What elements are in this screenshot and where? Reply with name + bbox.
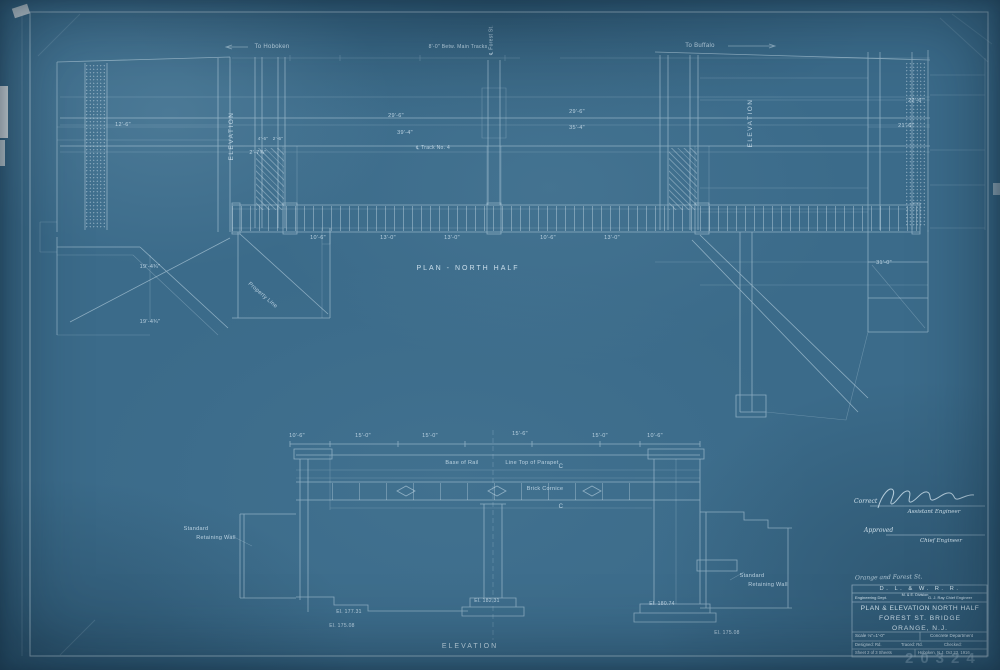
label-retaining-wall-left-2: Retaining Wall	[196, 536, 235, 542]
pier-hatch-right	[669, 148, 697, 210]
ballast-hatch-right	[905, 62, 927, 227]
drawing-title-line3: ORANGE, N.J.	[892, 626, 948, 633]
engineer-signature	[878, 489, 974, 508]
dim-label: 12'-6"	[115, 123, 131, 129]
chief-engineer-name: G. J. Ray Chief Engineer	[928, 596, 972, 600]
dim-label: 15'-0"	[355, 434, 371, 440]
correct-label: Correct	[854, 499, 877, 505]
traced-label: Traced: Rd.	[901, 643, 923, 647]
section-mark-c: C	[559, 464, 564, 470]
dim-label: 15'-6"	[512, 432, 528, 438]
pier-hatch-left	[256, 148, 284, 210]
dim-label: 35'-4"	[569, 126, 585, 132]
blueprint-sheet: To Hoboken To Buffalo 8'-0" Betw. Main T…	[0, 0, 1000, 670]
label-retaining-wall-right-1: Standard	[740, 574, 765, 580]
dim-label: 4'-6"	[258, 137, 268, 142]
label-elevation-right: ELEVATION	[748, 98, 755, 147]
label-elevation-left: ELEVATION	[229, 111, 236, 160]
dim-label: 19'-4¾"	[140, 320, 161, 326]
designed-label: Designed: Rd.	[855, 643, 882, 647]
sheet-number-label: Sheet 2 of 3 Sheets	[855, 651, 892, 655]
label-centerline-forest-st: ℄ Forest St.	[490, 25, 495, 55]
secondary-lines	[40, 55, 985, 604]
dim-label: 31'-0"	[876, 261, 892, 267]
dim-label: 29'-6"	[569, 110, 585, 116]
drawing-number-stamp: 20324	[905, 650, 982, 667]
dim-label: 39'-4"	[397, 131, 413, 137]
label-line-top-parapet: Line Top of Parapet	[505, 461, 558, 467]
dim-label: 2'-6"	[273, 137, 283, 142]
dim-label: 13'-0"	[444, 236, 460, 242]
scale-label: Scale ⅛"=1'-0"	[855, 634, 884, 639]
dim-label: 10'-6"	[289, 434, 305, 440]
handwritten-note: Orange and Forest St.	[855, 574, 923, 581]
label-to-hoboken: To Hoboken	[254, 44, 289, 50]
dim-label: 15'-0"	[422, 434, 438, 440]
dim-label: 13'-0"	[604, 236, 620, 242]
label-retaining-wall-left-1: Standard	[184, 527, 209, 533]
dim-label: 22'-6"	[908, 99, 924, 105]
division-label: M. & E. Division	[902, 594, 929, 598]
scratch-marks	[38, 14, 992, 655]
label-brick-cornice: Brick Cornice	[527, 487, 564, 493]
plan-title-label: PLAN - NORTH HALF	[416, 265, 519, 272]
elevation-level-label: El. 180.74	[649, 602, 675, 607]
engineering-dept-label: Engineering Dept.	[855, 596, 887, 600]
label-betw-main-tracks: 8'-0" Betw. Main Tracks	[429, 45, 488, 50]
ballast-hatch-left	[85, 64, 107, 228]
elevation-title-label: ELEVATION	[442, 643, 498, 650]
elevation-level-label: El. 177.31	[336, 610, 362, 615]
dim-label: 29'-6"	[388, 114, 404, 120]
dim-label: 10'-6"	[647, 434, 663, 440]
department-label: Concrete Department	[930, 634, 973, 639]
railroad-name: D. L. & W. R. R.	[880, 587, 961, 593]
assistant-engineer-label: Assistant Engineer	[908, 510, 961, 516]
primary-lines	[57, 44, 987, 657]
label-base-of-rail: Base of Rail	[445, 461, 478, 467]
paper-tear-left-2	[0, 140, 5, 166]
elevation-level-label: El. 175.08	[714, 631, 740, 636]
section-mark-c: C	[559, 504, 564, 510]
parapet-panel-pattern	[332, 483, 650, 500]
dim-label: 10'-6"	[310, 236, 326, 242]
dim-label: 2'-7¾"	[249, 151, 266, 157]
dim-label: 21'-6"	[898, 124, 914, 130]
label-centerline-track-4: ℄ Track No. 4	[416, 146, 450, 151]
elevation-level-label: El. 175.08	[329, 624, 355, 629]
label-retaining-wall-right-2: Retaining Wall	[748, 583, 787, 589]
dim-label: 15'-0"	[592, 434, 608, 440]
approved-label: Approved	[864, 528, 893, 534]
paper-tear-left	[0, 86, 8, 138]
checked-label: Checked:	[944, 643, 962, 647]
paper-tear-right	[993, 183, 1000, 195]
dim-label: 13'-0"	[380, 236, 396, 242]
label-to-buffalo: To Buffalo	[685, 43, 715, 49]
sheet-border	[30, 12, 988, 656]
drawing-title-line1: PLAN & ELEVATION NORTH HALF	[861, 606, 980, 613]
deck-tie-pattern	[232, 206, 920, 231]
dim-label: 19'-4¾"	[140, 265, 161, 271]
chief-engineer-label: Chief Engineer	[920, 539, 962, 545]
dim-label: 10'-6"	[540, 236, 556, 242]
elevation-level-label: El. 182.31	[474, 599, 500, 604]
drawing-title-line2: FOREST ST. BRIDGE	[879, 616, 961, 623]
blueprint-linework	[0, 0, 1000, 670]
